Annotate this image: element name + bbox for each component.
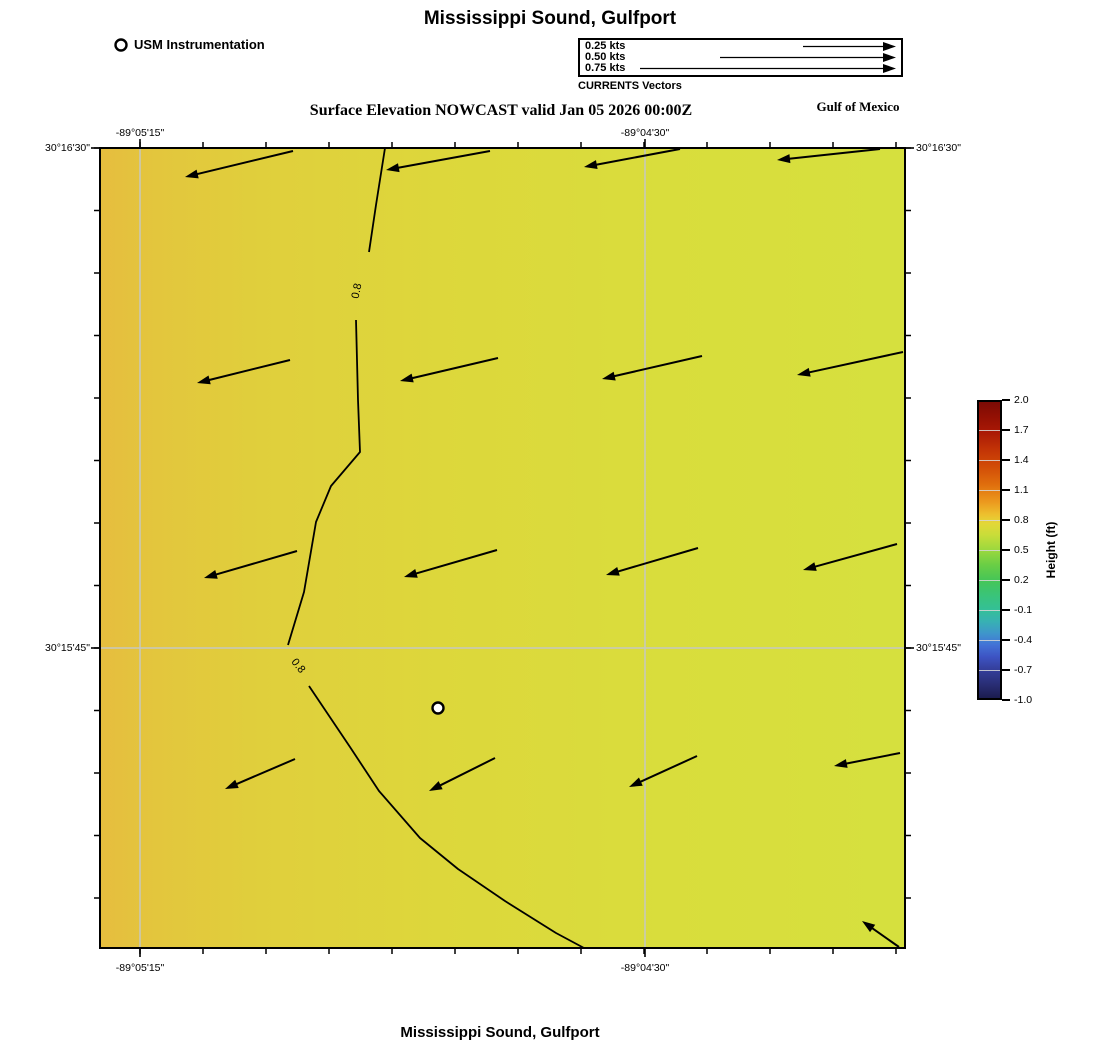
colorbar-tick bbox=[1002, 489, 1010, 491]
region-label: Gulf of Mexico bbox=[816, 99, 899, 115]
legend-reference-arrow bbox=[640, 64, 896, 73]
colorbar-separator bbox=[979, 670, 1000, 671]
station-legend-label: USM Instrumentation bbox=[134, 37, 265, 52]
nowcast-figure: Mississippi Sound, Gulfport USM Instrume… bbox=[0, 0, 1100, 1050]
colorbar-tick bbox=[1002, 519, 1010, 521]
lon-label-top-west: -89°05'15" bbox=[116, 127, 164, 139]
legend-reference-arrow bbox=[803, 42, 896, 51]
colorbar-tick bbox=[1002, 429, 1010, 431]
elevation-field bbox=[100, 148, 905, 948]
lat-label-right-south: 30°15'45" bbox=[916, 642, 961, 654]
colorbar-tick bbox=[1002, 609, 1010, 611]
colorbar-tick bbox=[1002, 549, 1010, 551]
colorbar-separator bbox=[979, 640, 1000, 641]
colorbar-tick-label: -0.7 bbox=[1014, 664, 1032, 676]
colorbar-tick-label: -0.4 bbox=[1014, 634, 1032, 646]
colorbar-separator bbox=[979, 430, 1000, 431]
station-marker bbox=[433, 703, 444, 714]
colorbar-tick-label: 0.2 bbox=[1014, 574, 1029, 586]
colorbar-separator bbox=[979, 550, 1000, 551]
circle-marker-icon bbox=[116, 40, 127, 51]
lon-label-bottom-west: -89°05'15" bbox=[116, 962, 164, 974]
colorbar-tick bbox=[1002, 579, 1010, 581]
figure-title: Mississippi Sound, Gulfport bbox=[424, 8, 676, 30]
colorbar-tick bbox=[1002, 699, 1010, 701]
colorbar-title: Height (ft) bbox=[1044, 522, 1058, 579]
vector-arrowhead-icon bbox=[883, 53, 896, 62]
colorbar-separator bbox=[979, 460, 1000, 461]
map-plot bbox=[0, 0, 1100, 1050]
vector-legend-caption: CURRENTS Vectors bbox=[578, 80, 682, 92]
lon-label-bottom-east: -89°04'30" bbox=[621, 962, 669, 974]
figure-subtitle: Surface Elevation NOWCAST valid Jan 05 2… bbox=[310, 102, 692, 120]
colorbar-tick bbox=[1002, 399, 1010, 401]
colorbar-tick-label: -1.0 bbox=[1014, 694, 1032, 706]
vector-arrowhead-icon bbox=[883, 64, 896, 73]
colorbar-tick-label: 1.1 bbox=[1014, 484, 1029, 496]
lat-label-right-north: 30°16'30" bbox=[916, 142, 961, 154]
colorbar-separator bbox=[979, 490, 1000, 491]
colorbar-tick bbox=[1002, 459, 1010, 461]
legend-reference-arrow bbox=[720, 53, 896, 62]
colorbar-tick-label: 2.0 bbox=[1014, 394, 1029, 406]
lat-label-left-north: 30°16'30" bbox=[45, 142, 92, 154]
colorbar-tick bbox=[1002, 669, 1010, 671]
colorbar-tick-label: 1.4 bbox=[1014, 454, 1029, 466]
colorbar-tick-label: -0.1 bbox=[1014, 604, 1032, 616]
colorbar-tick bbox=[1002, 639, 1010, 641]
colorbar-separator bbox=[979, 580, 1000, 581]
footer-title: Mississippi Sound, Gulfport bbox=[400, 1024, 599, 1041]
lat-label-left-south: 30°15'45" bbox=[45, 642, 92, 654]
lon-label-top-east: -89°04'30" bbox=[621, 127, 669, 139]
station-legend-marker-icon bbox=[112, 35, 132, 55]
colorbar-tick-label: 1.7 bbox=[1014, 424, 1029, 436]
colorbar-tick-label: 0.5 bbox=[1014, 544, 1029, 556]
colorbar-separator bbox=[979, 520, 1000, 521]
colorbar-tick-label: 0.8 bbox=[1014, 514, 1029, 526]
colorbar-separator bbox=[979, 610, 1000, 611]
vector-arrowhead-icon bbox=[883, 42, 896, 51]
